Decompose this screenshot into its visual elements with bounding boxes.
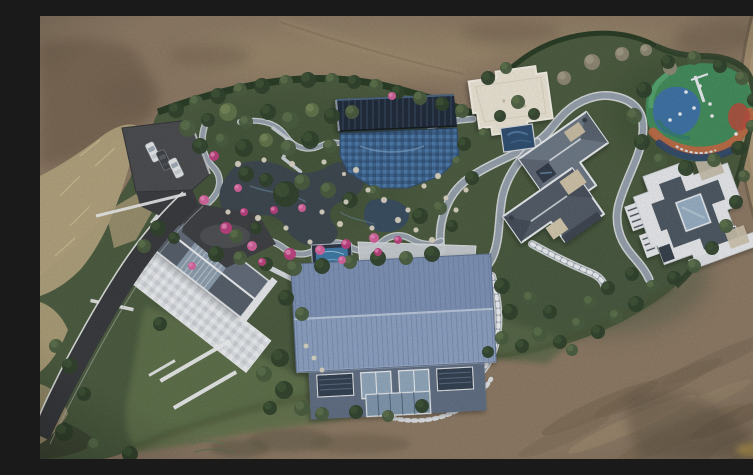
vignette (40, 16, 753, 459)
aerial-photo (40, 16, 753, 459)
aerial-photo-canvas (40, 16, 753, 459)
